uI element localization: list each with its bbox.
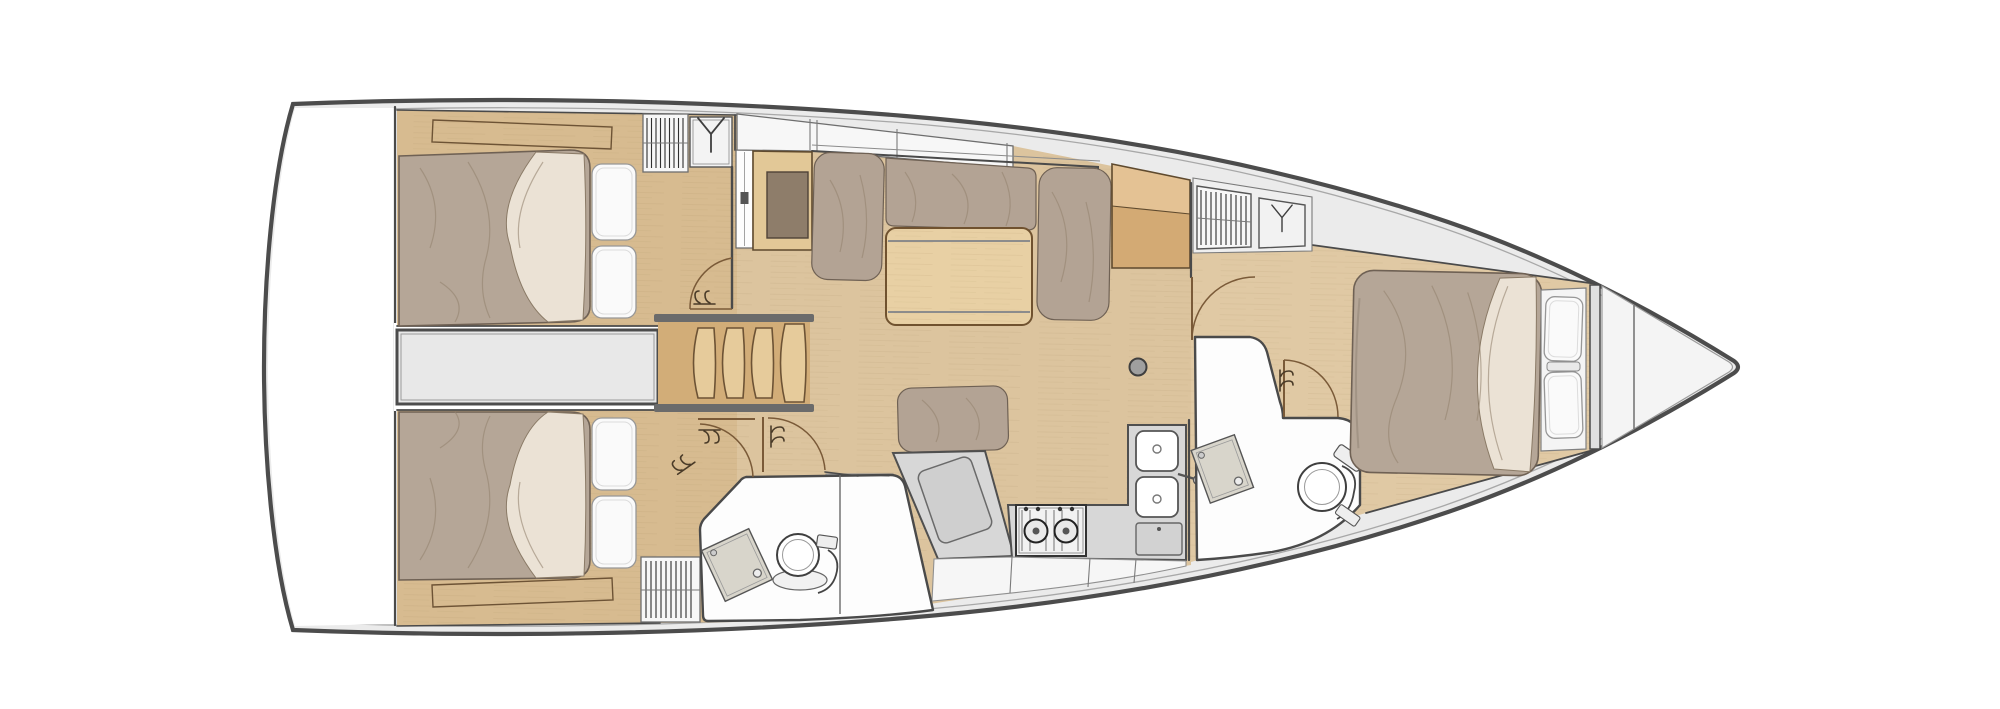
collision-bulkhead	[1590, 285, 1600, 449]
nav-station	[753, 151, 812, 250]
hanging-locker-forward	[1259, 198, 1305, 248]
stair-rail-top	[654, 314, 814, 322]
engine-compartment	[397, 330, 658, 404]
transom-area	[268, 108, 395, 626]
pillow-shelf	[1547, 362, 1580, 371]
hanging-locker-aft	[690, 117, 732, 167]
transom-platform	[268, 107, 395, 626]
louvered-locker-aft-port	[641, 557, 700, 622]
mast-post	[1130, 359, 1147, 376]
saloon-table	[886, 228, 1032, 325]
stair-rail-bottom	[654, 404, 814, 412]
sideboard-cabinet	[1112, 164, 1190, 268]
bench-settee	[897, 386, 1009, 453]
two-burner-stove	[1016, 505, 1086, 556]
louvered-locker-aft-starboard	[643, 114, 688, 172]
engine-box	[397, 330, 658, 404]
floorplan-canvas	[0, 0, 2000, 709]
settee-corner-left	[811, 152, 884, 281]
door-handle	[741, 192, 749, 204]
louvered-locker-forward	[1197, 186, 1251, 249]
yacht-floorplan	[0, 0, 2000, 709]
companionway-stairs	[654, 314, 814, 412]
pillows	[1544, 296, 1583, 438]
chart-table-top	[767, 172, 808, 238]
island-bed-forward	[1350, 270, 1542, 476]
pocket-sliding-door	[736, 150, 753, 248]
settee-back	[886, 158, 1036, 230]
settee-corner-right	[1037, 167, 1112, 320]
